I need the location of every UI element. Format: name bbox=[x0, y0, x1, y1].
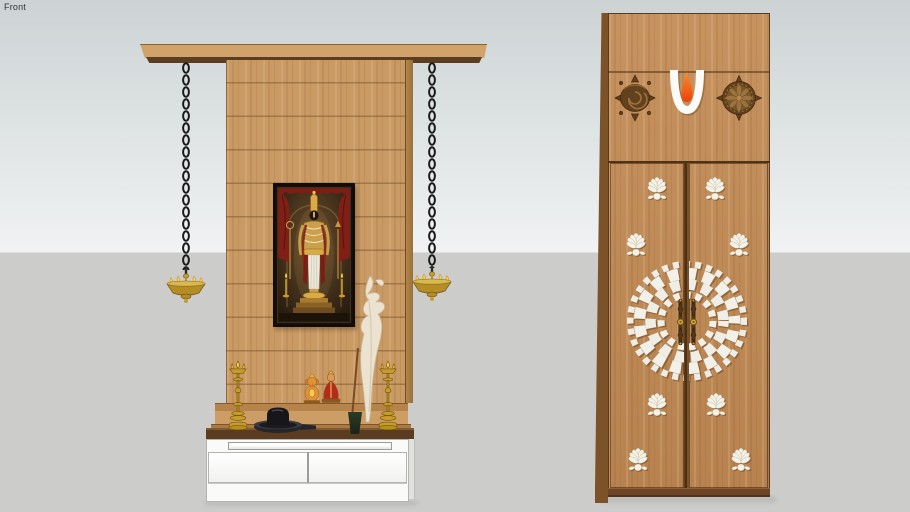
door-unit-side-face bbox=[595, 13, 608, 503]
hanging-diya-right[interactable] bbox=[410, 266, 454, 304]
chakra-icon bbox=[716, 75, 762, 121]
door-handles[interactable] bbox=[671, 296, 703, 348]
lotus-cutout bbox=[700, 391, 732, 421]
lotus-cutout bbox=[620, 231, 652, 261]
shiva-lingam[interactable] bbox=[252, 406, 320, 434]
lakshmi-idol[interactable] bbox=[320, 369, 342, 404]
plinth-line bbox=[208, 483, 407, 484]
pullout-tray[interactable] bbox=[228, 442, 392, 450]
lotus-cutout bbox=[699, 175, 731, 205]
view-label: Front bbox=[4, 2, 26, 12]
back-panel-edge bbox=[405, 60, 413, 403]
lotus-cutout bbox=[622, 446, 654, 476]
lotus-cutout bbox=[641, 391, 673, 421]
hanging-chain-right[interactable] bbox=[427, 62, 437, 268]
canopy-top[interactable] bbox=[140, 44, 487, 58]
door-base-plinth bbox=[608, 488, 770, 497]
ganesha-idol[interactable] bbox=[302, 372, 322, 404]
lotus-cutout bbox=[723, 231, 755, 261]
brass-samai-left[interactable] bbox=[227, 358, 249, 434]
hanging-chain-left[interactable] bbox=[181, 62, 191, 270]
cabinet-side-face bbox=[409, 439, 415, 499]
namam-tilak-icon bbox=[665, 68, 709, 124]
brass-samai-right[interactable] bbox=[377, 358, 399, 434]
viewport-3d[interactable]: Front bbox=[0, 0, 910, 512]
lotus-cutout bbox=[641, 175, 673, 205]
lotus-cutout bbox=[725, 446, 757, 476]
hanging-diya-left[interactable] bbox=[164, 268, 208, 306]
shankha-conch-icon bbox=[612, 74, 658, 122]
drawer-divider bbox=[307, 452, 309, 483]
door-shadow bbox=[600, 497, 776, 502]
